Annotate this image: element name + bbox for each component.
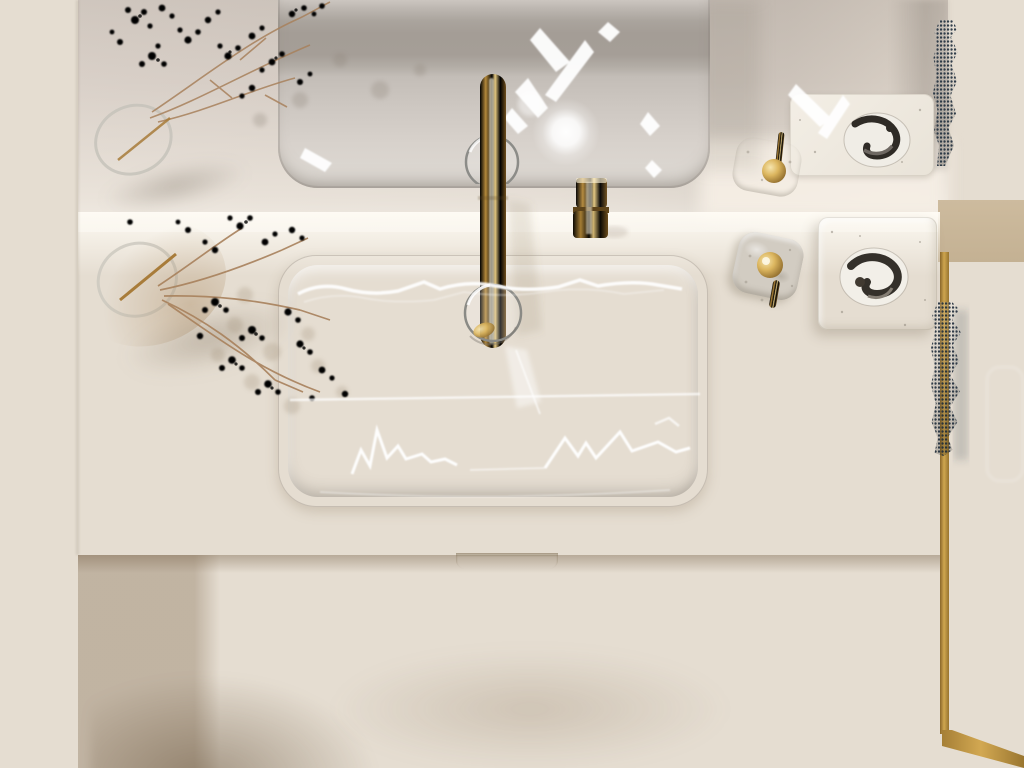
soap-tray — [818, 217, 937, 330]
side-wall — [0, 0, 78, 768]
floor-shadow-mid — [330, 650, 730, 768]
bathroom-vanity-scene — [0, 0, 1024, 768]
drawer-pull — [456, 553, 558, 569]
sink-basin — [288, 265, 698, 497]
glass-reflection-outline — [986, 366, 1024, 482]
wall-seam — [76, 0, 79, 555]
right-wall — [948, 0, 1024, 170]
